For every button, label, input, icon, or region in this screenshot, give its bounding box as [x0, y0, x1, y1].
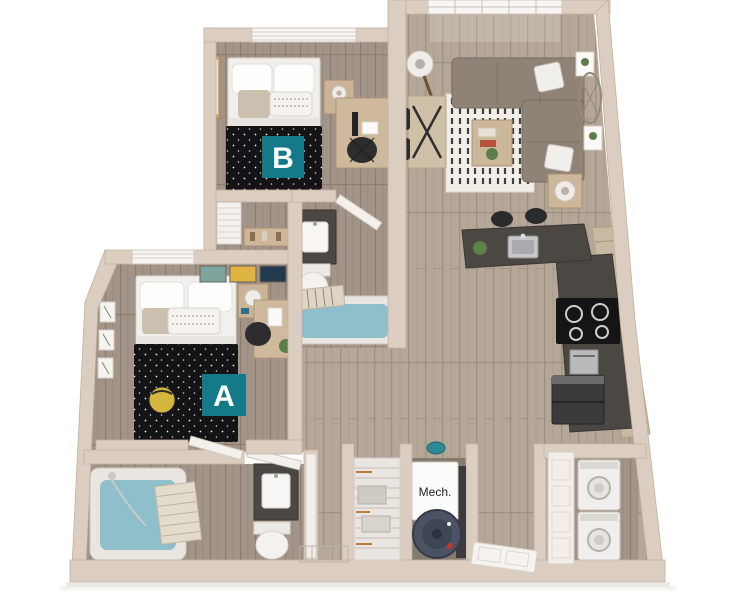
- toilet-2: [254, 522, 290, 559]
- unit-a-badge: A: [202, 374, 246, 416]
- refrigerator: [552, 376, 604, 424]
- wall-b-bottom-1: [216, 190, 292, 202]
- bar-stool-1: [491, 211, 513, 227]
- laundry-closet: [548, 452, 620, 564]
- laundry-door: [548, 452, 574, 564]
- throw-pillow-2: [544, 144, 574, 172]
- dryer: [578, 512, 620, 560]
- wall-west-b: [204, 28, 216, 252]
- bar-stool-2: [525, 208, 547, 224]
- wall-a-bottom-2: [246, 440, 302, 454]
- papers: [268, 308, 282, 326]
- papers: [362, 122, 378, 134]
- unit-b-badge-label: B: [272, 142, 294, 175]
- valve: [447, 543, 453, 549]
- wall-bottom: [70, 560, 665, 582]
- wall-top-b-2: [356, 28, 392, 42]
- window-bedroom-b: [252, 28, 356, 42]
- unit-b-badge: B: [262, 136, 304, 178]
- office-chair: [245, 322, 271, 346]
- wall-art-trio: [200, 266, 286, 282]
- plant: [486, 148, 498, 160]
- wall-a-east: [288, 190, 302, 452]
- wall-top-b-1: [204, 28, 252, 42]
- wall-top-living-1: [406, 0, 428, 14]
- books: [478, 128, 496, 137]
- vanity-2: [254, 464, 298, 520]
- window-light: [430, 14, 560, 42]
- island-sink: [508, 234, 538, 258]
- pillow: [274, 64, 314, 94]
- side-table: [548, 174, 582, 208]
- coffee-table: [472, 120, 512, 166]
- monitor: [352, 112, 358, 136]
- floor-plan-canvas: B: [0, 0, 740, 592]
- bed-a: [134, 276, 238, 442]
- teal-bin: [427, 442, 445, 454]
- knit-pillow: [168, 308, 220, 334]
- mech-room-label: Mech.: [419, 485, 452, 499]
- sink: [262, 474, 290, 508]
- wall-divider-b-living: [388, 0, 406, 348]
- pouf: [149, 387, 175, 413]
- unit-a-badge-label: A: [213, 380, 235, 413]
- throw-pillow-1: [534, 62, 565, 93]
- wall-art-left: [98, 302, 115, 378]
- basket-1: [358, 486, 386, 504]
- plan-shadow: [60, 582, 676, 590]
- window-bedroom-a: [132, 250, 194, 264]
- sink: [302, 222, 328, 252]
- window-living: [428, 0, 562, 14]
- accent-pillow: [238, 90, 270, 118]
- wall-bath1-north: [292, 190, 336, 202]
- shower-wand: [108, 472, 116, 480]
- towel: [155, 482, 202, 544]
- desk-b: [336, 98, 390, 168]
- wall-closet-2: [400, 444, 412, 562]
- floor-plan-svg: B: [0, 0, 740, 592]
- faucet: [521, 234, 526, 239]
- open-door-panel: [306, 454, 316, 558]
- phone: [241, 308, 249, 314]
- bath-water: [300, 304, 388, 338]
- storage-closet: [354, 458, 400, 560]
- pillow: [232, 64, 272, 94]
- island-plant: [473, 241, 487, 255]
- bathtub-2: [90, 468, 202, 560]
- faucet: [313, 222, 317, 226]
- magazine: [480, 140, 496, 147]
- cooktop: [556, 298, 620, 344]
- knit-pillow: [270, 92, 312, 116]
- washer: [578, 460, 620, 510]
- faucet: [274, 474, 278, 478]
- wall-closet-4: [534, 444, 546, 562]
- basket-2: [362, 516, 390, 532]
- wall-oven: [570, 350, 598, 374]
- wall-closet-1: [342, 444, 354, 562]
- water-heater: [413, 510, 461, 558]
